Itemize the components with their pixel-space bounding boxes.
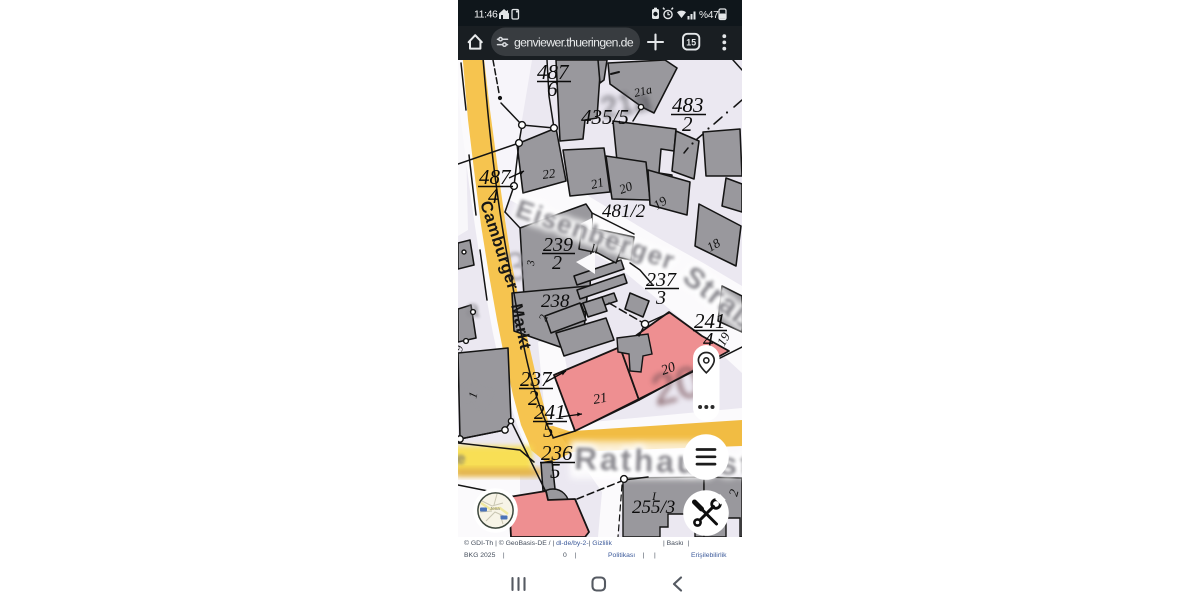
svg-text:5: 5 bbox=[550, 459, 561, 483]
svg-text:2: 2 bbox=[552, 252, 562, 274]
svg-text:15: 15 bbox=[686, 38, 696, 48]
svg-text:21: 21 bbox=[592, 391, 608, 408]
svg-text:e: e bbox=[458, 449, 465, 468]
svg-text:%47: %47 bbox=[699, 10, 719, 21]
svg-text:238: 238 bbox=[541, 291, 570, 312]
svg-text:6: 6 bbox=[547, 77, 558, 101]
svg-text:Jena: Jena bbox=[490, 506, 500, 511]
svg-text:3: 3 bbox=[655, 287, 666, 309]
svg-text:5: 5 bbox=[543, 418, 554, 442]
svg-text:2: 2 bbox=[682, 112, 693, 136]
svg-text:435/5: 435/5 bbox=[581, 105, 629, 129]
svg-text:481/2: 481/2 bbox=[602, 201, 646, 222]
svg-text:genviewer.thueringen.de: genviewer.thueringen.de bbox=[514, 35, 634, 49]
svg-text:11:46: 11:46 bbox=[474, 9, 498, 21]
svg-text:22: 22 bbox=[541, 165, 556, 182]
